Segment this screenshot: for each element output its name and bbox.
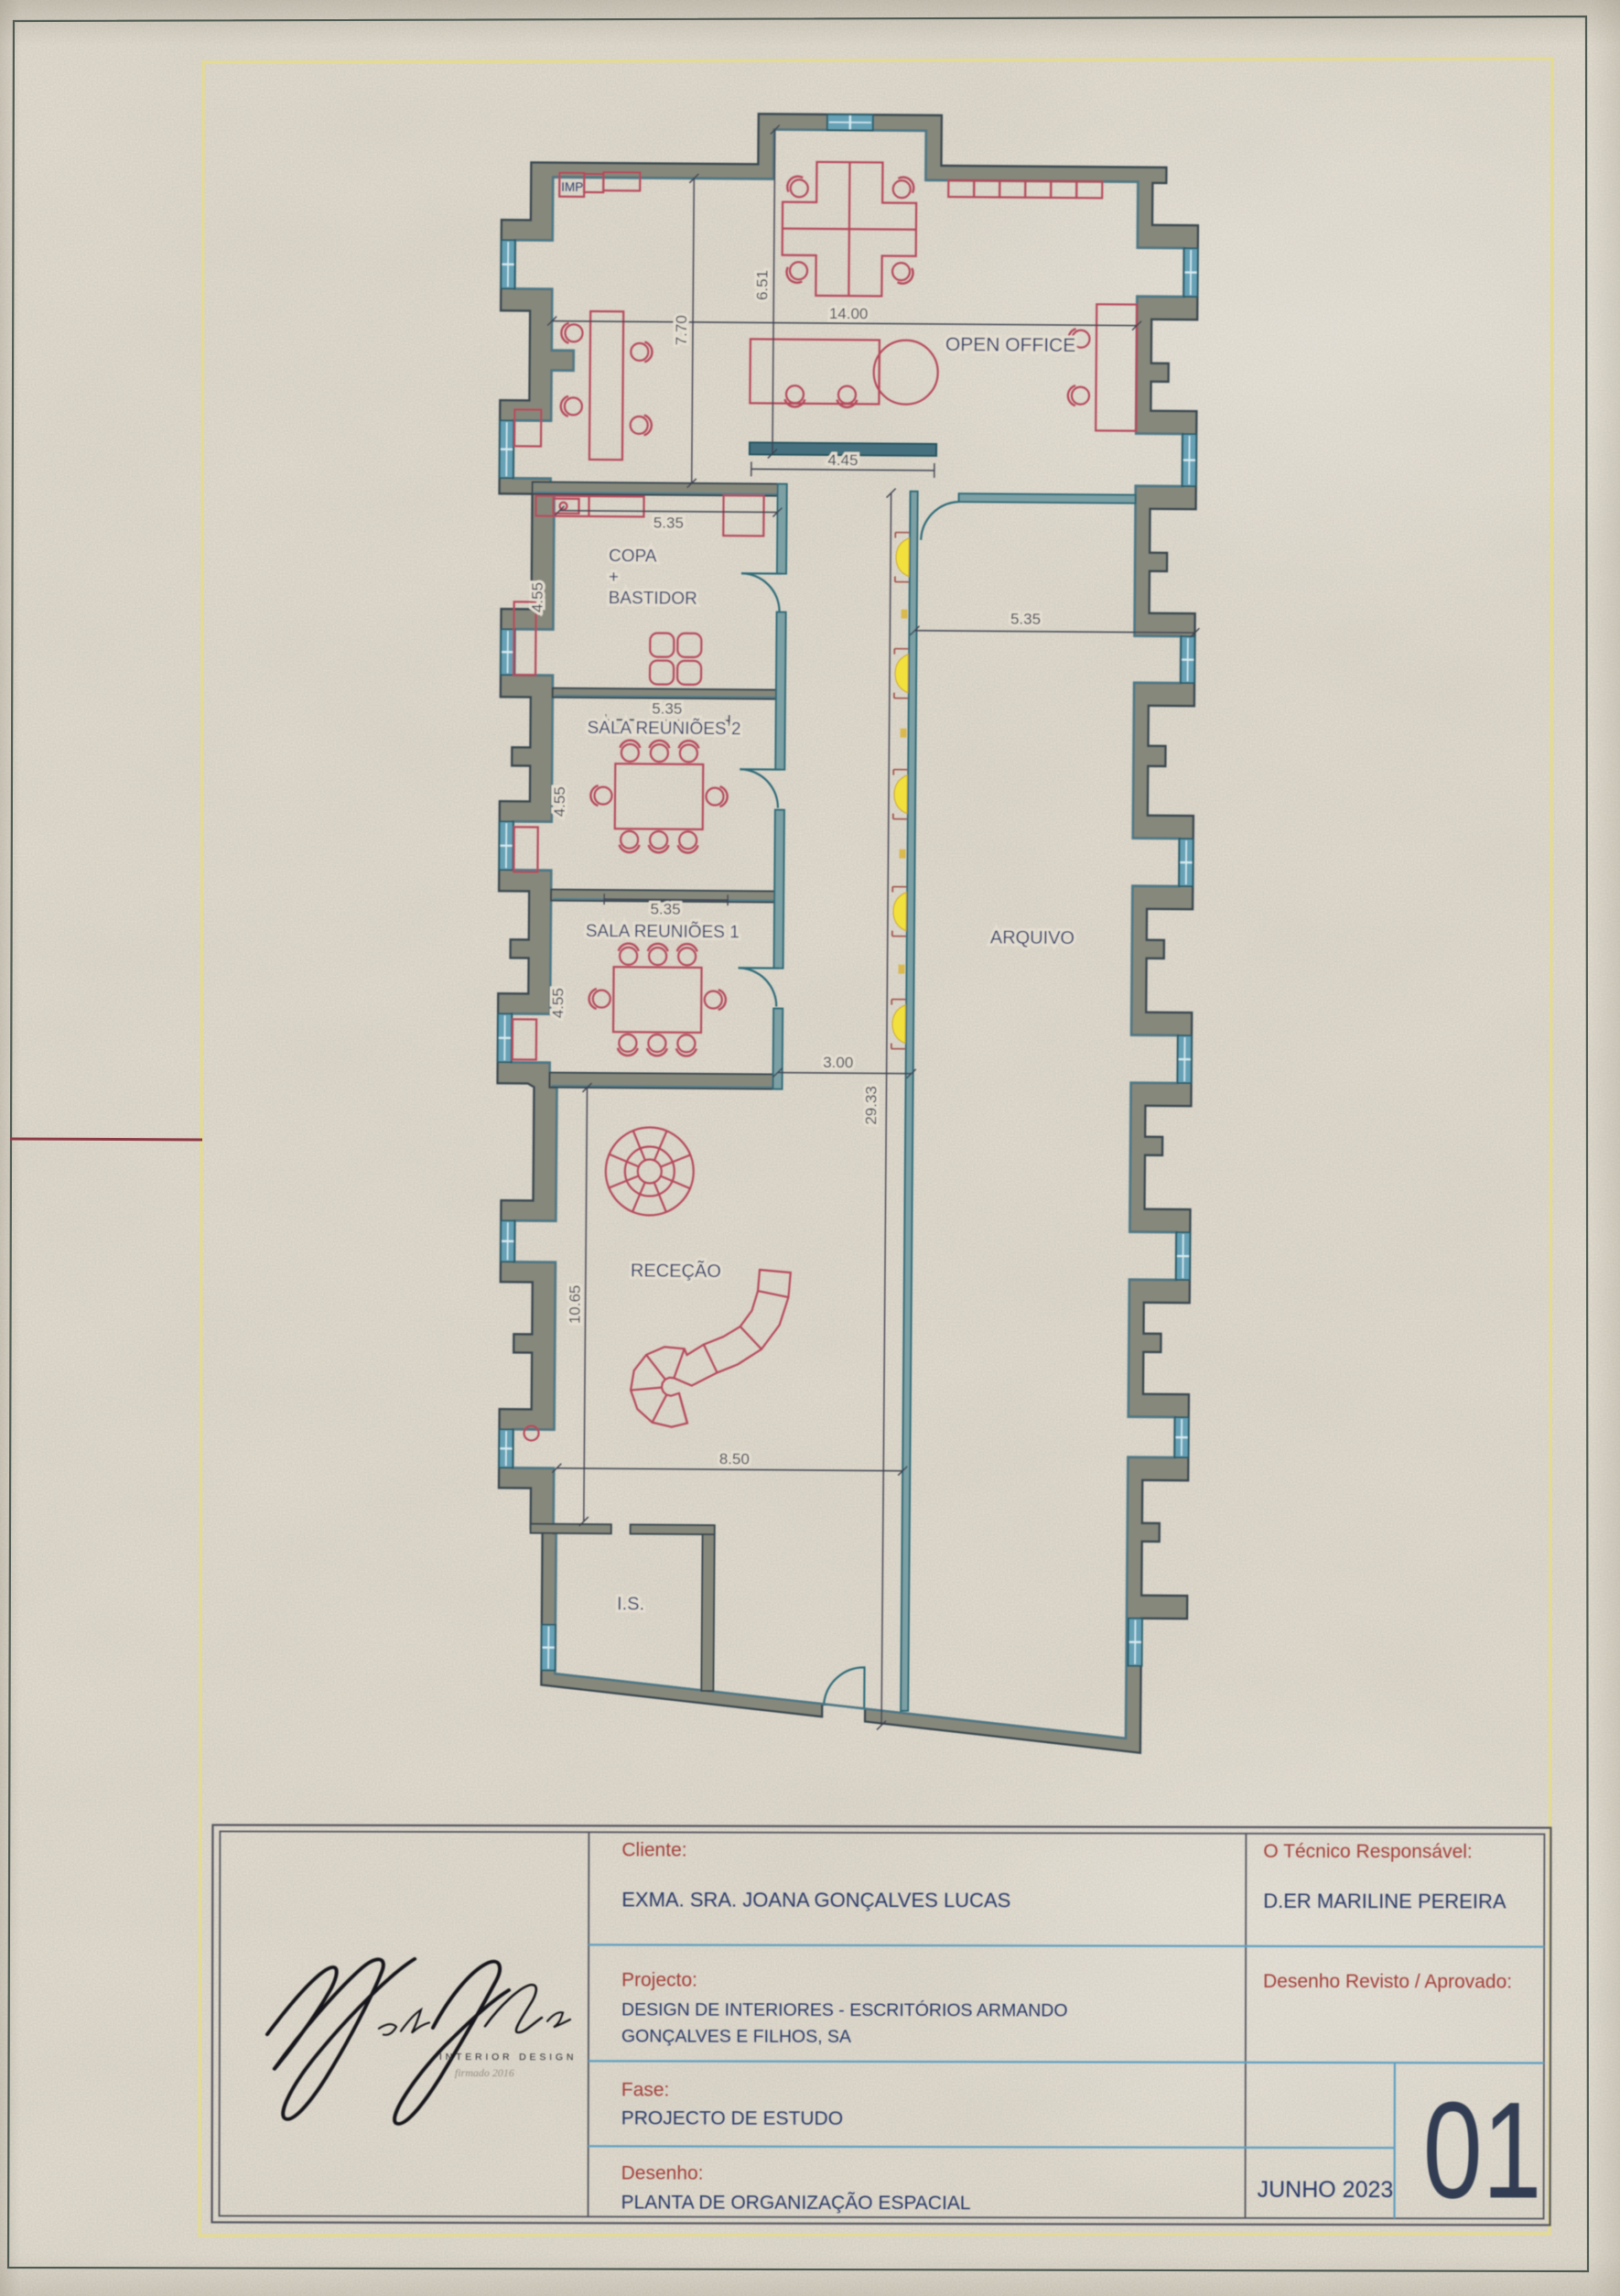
svg-text:firmado 2016: firmado 2016 bbox=[455, 2066, 514, 2079]
svg-text:6.51: 6.51 bbox=[753, 270, 771, 300]
svg-text:PLANTA DE ORGANIZAÇÃO ESPACIAL: PLANTA DE ORGANIZAÇÃO ESPACIAL bbox=[621, 2191, 971, 2214]
svg-text:EXMA. SRA. JOANA GONÇALVES LUC: EXMA. SRA. JOANA GONÇALVES LUCAS bbox=[621, 1888, 1010, 1912]
svg-text:7.70: 7.70 bbox=[673, 315, 690, 345]
svg-text:I.S.: I.S. bbox=[617, 1594, 644, 1614]
svg-text:RECEÇÃO: RECEÇÃO bbox=[631, 1259, 721, 1282]
svg-text:4.45: 4.45 bbox=[827, 451, 858, 469]
svg-text:10.65: 10.65 bbox=[566, 1285, 583, 1325]
svg-text:PROJECTO DE ESTUDO: PROJECTO DE ESTUDO bbox=[621, 2107, 843, 2129]
svg-text:14.00: 14.00 bbox=[829, 305, 869, 322]
svg-text:COPA: COPA bbox=[609, 547, 657, 566]
svg-text:3.00: 3.00 bbox=[823, 1054, 853, 1071]
svg-text:OPEN OFFICE: OPEN OFFICE bbox=[945, 334, 1076, 356]
svg-text:4.55: 4.55 bbox=[529, 582, 546, 612]
svg-text:IMP: IMP bbox=[561, 180, 583, 194]
svg-text:01: 01 bbox=[1423, 2073, 1542, 2226]
svg-text:5.35: 5.35 bbox=[650, 901, 680, 918]
svg-text:Projecto:: Projecto: bbox=[621, 1969, 697, 1990]
svg-text:SALA REUNIÕES 1: SALA REUNIÕES 1 bbox=[586, 921, 740, 942]
svg-text:4.55: 4.55 bbox=[549, 988, 567, 1018]
svg-text:BASTIDOR: BASTIDOR bbox=[609, 589, 697, 609]
svg-text:5.35: 5.35 bbox=[653, 514, 684, 532]
svg-text:5.35: 5.35 bbox=[652, 700, 682, 718]
svg-text:29.33: 29.33 bbox=[862, 1086, 880, 1125]
svg-text:Desenho Revisto / Aprovado:: Desenho Revisto / Aprovado: bbox=[1263, 1971, 1512, 1993]
svg-text:O Técnico Responsável:: O Técnico Responsável: bbox=[1263, 1841, 1472, 1862]
svg-text:Desenho:: Desenho: bbox=[621, 2162, 704, 2183]
svg-text:Cliente:: Cliente: bbox=[621, 1839, 686, 1860]
svg-text:5.35: 5.35 bbox=[1010, 611, 1041, 628]
svg-text:SALA REUNIÕES 2: SALA REUNIÕES 2 bbox=[588, 718, 741, 739]
svg-text:JUNHO 2023: JUNHO 2023 bbox=[1258, 2177, 1394, 2203]
svg-text:Fase:: Fase: bbox=[621, 2079, 670, 2100]
svg-text:ARQUIVO: ARQUIVO bbox=[990, 927, 1075, 948]
svg-text:DESIGN DE INTERIORES - ESCRITÓ: DESIGN DE INTERIORES - ESCRITÓRIOS ARMAN… bbox=[621, 1998, 1068, 2020]
svg-text:+: + bbox=[609, 568, 619, 587]
svg-text:8.50: 8.50 bbox=[719, 1450, 750, 1467]
svg-text:GONÇALVES E FILHOS, SA: GONÇALVES E FILHOS, SA bbox=[621, 2026, 851, 2047]
svg-text:INTERIOR DESIGN: INTERIOR DESIGN bbox=[439, 2052, 577, 2063]
svg-text:4.55: 4.55 bbox=[551, 786, 568, 817]
svg-text:D.ER MARILINE PEREIRA: D.ER MARILINE PEREIRA bbox=[1263, 1890, 1507, 1913]
